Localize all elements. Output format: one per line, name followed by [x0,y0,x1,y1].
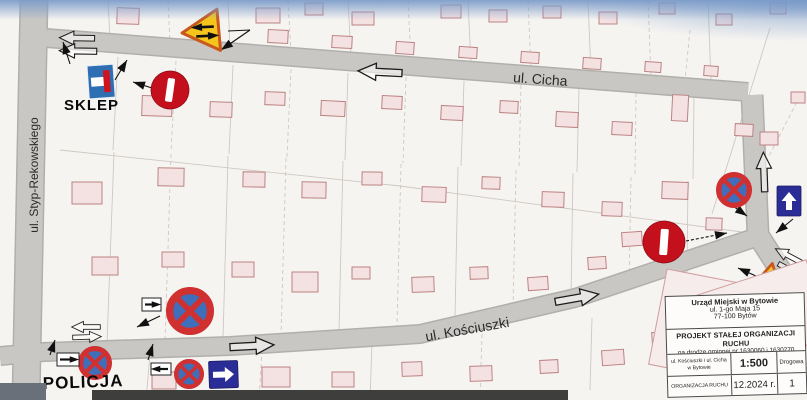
parcel-line [768,96,800,158]
building [92,257,118,275]
leader-arrowhead [738,268,751,277]
street-label: ul. Styp-Rekowskiego [27,117,41,233]
building [583,57,602,69]
leader-arrowhead [117,60,127,72]
building [528,276,549,290]
scale-value: 1:500 [731,352,778,374]
parcel-line [635,93,636,176]
date-value: 12.2024 r. [732,374,779,395]
leader-arrowhead [133,82,146,90]
parcel-line [339,161,343,330]
building [735,124,754,137]
place-label: SKLEP [64,97,119,114]
building [622,231,643,246]
building [302,182,326,198]
building [332,372,354,387]
parcel-line [513,170,516,308]
building [72,182,102,204]
building [662,182,689,200]
parcel-line [403,77,406,163]
building [262,367,290,387]
building [265,92,285,106]
building [521,51,540,63]
photo-shadow-corner [0,383,46,400]
building [556,111,579,127]
building [470,267,488,280]
building [352,267,370,279]
direction-plate-icon [151,363,171,375]
parcel-line [223,156,228,339]
title-block-date-row: ORGANIZACJA RUCHU 12.2024 r. 1 [668,373,807,397]
building [470,366,493,382]
building [760,132,778,145]
parcel-line [397,164,401,326]
building [382,95,403,109]
parcel-line [519,85,521,169]
building [243,172,265,187]
photo-shadow-bar [92,390,568,400]
building [542,192,565,208]
parcel-line [455,167,458,318]
building [459,46,478,58]
parcel-line [60,150,400,186]
parcel-line [281,158,286,335]
location-label: ul. Kościuszki i ul. Cicha w Bytowie [667,353,732,376]
direction-plate-icon [142,298,161,311]
title-block-project: PROJEKT STAŁEJ ORGANIZACJI RUCHU na drod… [667,326,806,355]
building [540,360,559,374]
road [0,237,757,356]
direction-plate-icon [57,353,79,366]
building [441,105,464,120]
parcel-line [571,173,573,297]
parcel-line [577,89,579,172]
building [612,121,633,135]
one-way-sign-icon [777,186,801,216]
building [396,41,415,54]
leader-arrowhead [776,222,788,233]
sky-corner [567,0,807,42]
building [706,218,722,231]
building [500,101,519,114]
leader-line [228,30,250,31]
building [588,256,607,269]
sheet-number: 1 [778,373,807,394]
parcel-line [345,73,348,160]
building [162,252,184,267]
building [482,177,500,190]
traffic-plan-map: ul. Cichaul. Kościuszkiul. Styp-Rekowski… [0,0,807,400]
stage-label: ORGANIZACJA RUCHU [668,375,733,397]
building [645,61,662,72]
parcel-line [590,318,592,390]
building [158,168,184,186]
no-stopping-sign-icon [166,287,214,335]
parcel-line [107,152,114,344]
title-block-office: Urząd Miejski w Bytowie ul. 1-go Maja 15… [666,293,805,330]
title-block: Urząd Miejski w Bytowie ul. 1-go Maja 15… [665,292,807,398]
branch-label: Drogowa [777,351,806,373]
building [232,262,254,277]
building [210,102,233,118]
building [412,277,435,293]
no-stopping-sign-icon [716,172,752,208]
building [362,172,382,185]
building [422,187,447,203]
parcel-line [400,186,742,232]
building [671,95,688,122]
one-way-sign-icon [209,361,239,389]
parcel-line [693,97,694,179]
building [332,35,353,48]
building [704,66,719,77]
building [402,362,422,377]
building [268,29,289,43]
road-direction-arrow [72,321,101,332]
dead-end-sign-icon [87,64,115,99]
building [602,202,622,217]
building [321,100,346,116]
building [791,92,805,103]
parcel-line [461,81,464,166]
building [602,349,625,365]
building [292,272,318,292]
no-stopping-sign-icon [174,359,204,389]
leader-arrowhead [137,318,150,327]
parcel-line [287,69,291,157]
